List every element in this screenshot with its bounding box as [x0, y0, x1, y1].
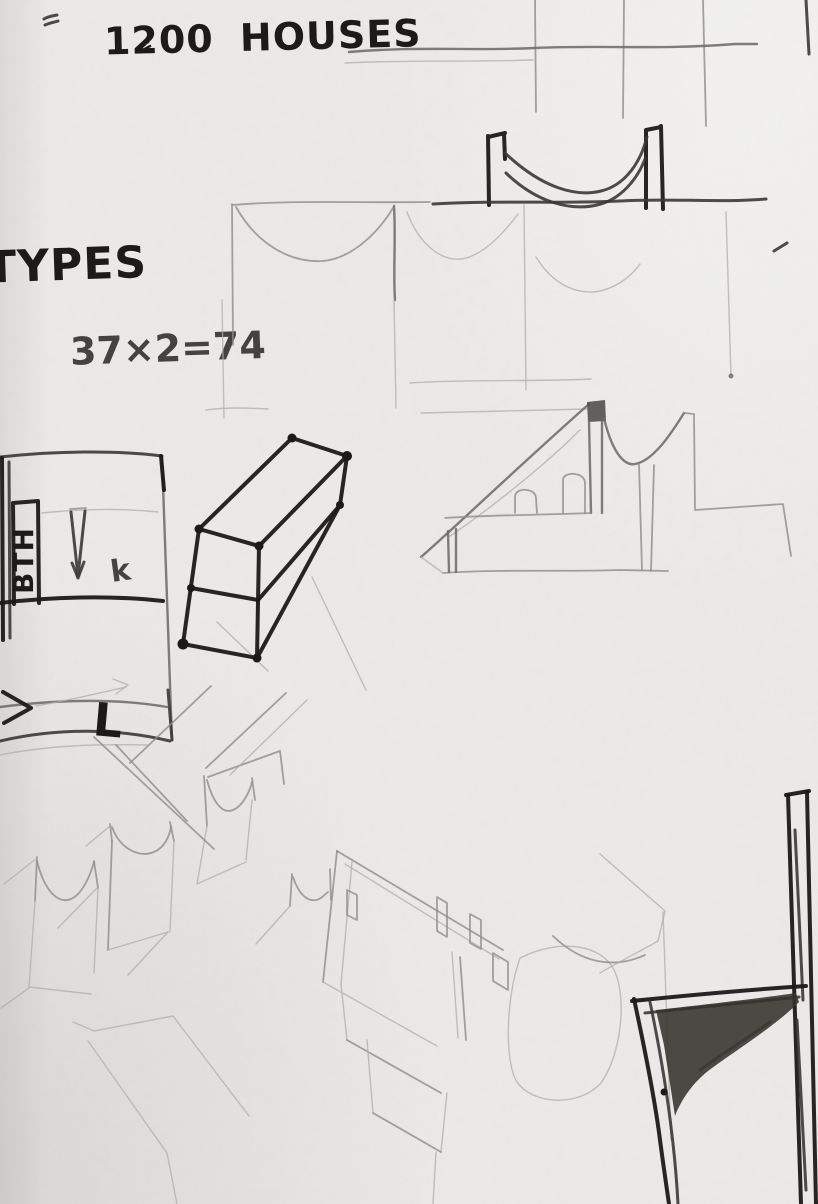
- sketch-canvas: 1200 HOUSES = TYPES 37×2=74: [0, 0, 818, 1204]
- calc-note-text: 37×2=74: [69, 323, 266, 374]
- sketchbook-page: 1200 HOUSES = TYPES 37×2=74: [0, 0, 818, 1204]
- bath-label-text: BTH: [7, 527, 40, 594]
- types-label-text: TYPES: [0, 237, 148, 294]
